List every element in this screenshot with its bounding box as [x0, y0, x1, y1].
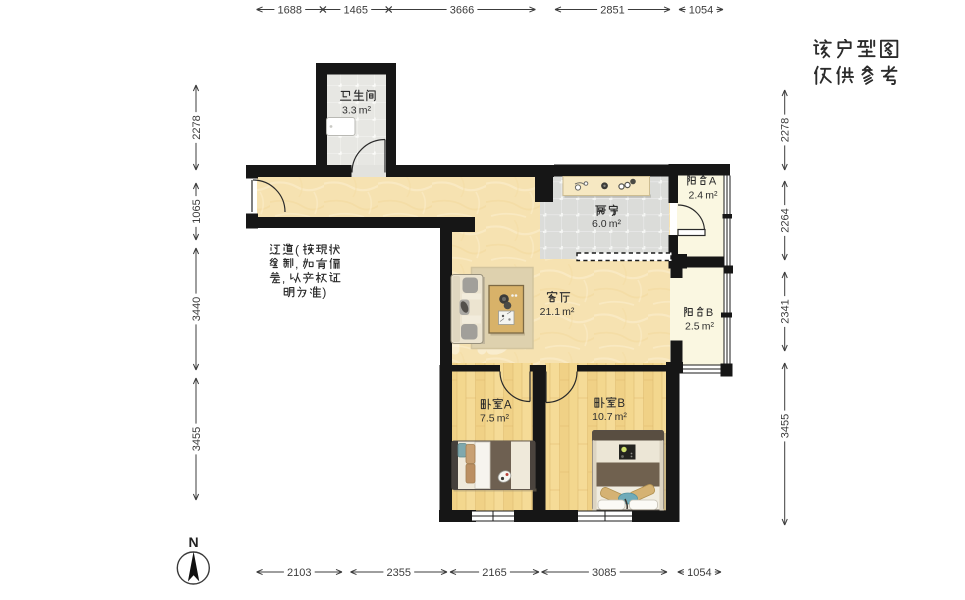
svg-text:2264: 2264	[780, 208, 792, 232]
svg-text:2278: 2278	[191, 115, 203, 139]
svg-text:1065: 1065	[191, 199, 203, 223]
svg-text:2.4 m²: 2.4 m²	[689, 190, 718, 202]
svg-text:2355: 2355	[387, 567, 411, 579]
svg-text:2165: 2165	[482, 567, 506, 579]
svg-text:,: ,	[295, 257, 298, 271]
svg-text:3455: 3455	[191, 427, 203, 451]
svg-text:2278: 2278	[780, 118, 792, 142]
svg-text:2.5 m²: 2.5 m²	[685, 321, 714, 333]
svg-text:,: ,	[282, 271, 285, 285]
svg-text:N: N	[189, 534, 199, 550]
svg-text:1465: 1465	[344, 5, 368, 17]
svg-text:3455: 3455	[780, 414, 792, 438]
svg-text:3666: 3666	[450, 5, 474, 17]
svg-text:1688: 1688	[278, 5, 302, 17]
svg-text:2341: 2341	[780, 299, 792, 323]
svg-text:2851: 2851	[600, 5, 624, 17]
svg-text:3.3 m²: 3.3 m²	[342, 105, 371, 117]
svg-text:2103: 2103	[287, 567, 311, 579]
svg-text:3085: 3085	[592, 567, 616, 579]
svg-text:7.5 m²: 7.5 m²	[480, 413, 509, 425]
svg-text:1054: 1054	[687, 567, 711, 579]
svg-text:B: B	[617, 398, 625, 410]
svg-text:B: B	[706, 307, 713, 319]
svg-text:A: A	[504, 399, 512, 411]
svg-text:1054: 1054	[689, 5, 713, 17]
svg-text:): )	[322, 286, 326, 300]
svg-text:10.7 m²: 10.7 m²	[592, 411, 627, 423]
svg-text:6.0 m²: 6.0 m²	[592, 218, 621, 230]
svg-text:3440: 3440	[191, 297, 203, 321]
svg-text:A: A	[709, 175, 717, 187]
svg-text:21.1 m²: 21.1 m²	[540, 306, 575, 318]
